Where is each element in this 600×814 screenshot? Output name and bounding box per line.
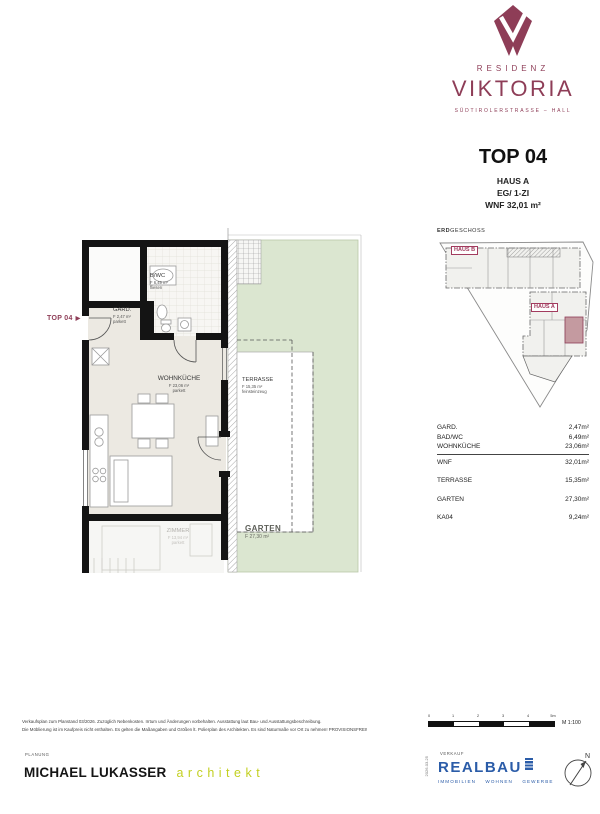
unit-type: EG/ 1-ZI [430, 188, 596, 198]
area-table: GARD.2,47m² BAD/WC6,49m² WOHNKÜCHE23,06m… [437, 423, 589, 523]
siteplan-title: ERDGESCHOSS [437, 228, 485, 234]
table-row: GARD.2,47m² [437, 423, 589, 433]
realbau-badge-icon [525, 758, 533, 771]
brand-viktoria: VIKTORIA [430, 76, 596, 102]
verkauf-label: VERKAUF [440, 751, 464, 756]
room-label-wohnkueche: WOHNKÜCHE F 23,06 m² parkett [147, 375, 211, 394]
table-row: WOHNKÜCHE23,06m² [437, 442, 589, 452]
table-row: KA049,24m² [437, 513, 589, 523]
architect-title: architekt [176, 766, 264, 780]
table-row: TERRASSE15,35m² [437, 476, 589, 486]
entrance-arrow-icon: ▶ [76, 316, 81, 322]
table-row: GARTEN27,30m² [437, 495, 589, 505]
room-label-bwc: B/WC F 6,49 m² fliesen [150, 273, 168, 291]
scale-text: M 1:100 [562, 720, 581, 726]
svg-text:N: N [585, 753, 590, 760]
realbau-logo: REALBAU [438, 758, 533, 776]
planung-label: PLANUNG [25, 752, 49, 757]
siteplan-title-bold: ERD [437, 228, 450, 234]
brand-tagline: SÜDTIROLERSTRASSE – HALL [430, 108, 596, 114]
scale-bar-segments [428, 721, 555, 727]
residenz-viktoria-logo-icon [490, 4, 536, 60]
floorplan-drawing [78, 228, 364, 573]
disclaimer: Verkaufsplan zum Planstand 03/2026. Zuzü… [22, 718, 417, 733]
unit-title: TOP 04 [430, 146, 596, 169]
plan-date: 2026-03-25 [424, 756, 429, 776]
brand-residenz: RESIDENZ [430, 64, 596, 73]
siteplan-drawing [432, 236, 596, 420]
scale-bar: 0 1 2 3 4 5m M 1:100 [428, 714, 598, 732]
room-label-gard: GARD. F 2,47 m² parkett [113, 307, 131, 325]
table-row: BAD/WC6,49m² [437, 433, 589, 443]
compass-north-icon: N [558, 748, 598, 792]
table-row-wnf: WNF32,01m² [437, 458, 589, 468]
siteplan-haus-b-label: HAUS B [451, 246, 478, 255]
unit-wnf: WNF 32,01 m² [430, 200, 596, 210]
table-separator [437, 454, 589, 455]
architect-name: MICHAEL LUKASSER [24, 765, 166, 780]
room-label-garten: GARTEN F 27,30 m² [245, 524, 281, 540]
room-label-zimmer: ZIMMER F 13,94 m² parkett [148, 528, 208, 546]
realbau-subtitle: IMMOBILIEN WOHNEN GEWERBE [438, 779, 554, 784]
siteplan-haus-a-label: HAUS A [531, 303, 558, 312]
room-label-terrasse: TERRASSE F 15,35 m² feinsteinzeug [242, 377, 273, 395]
entrance-label: TOP 04▶ [47, 315, 81, 322]
plan-sheet: RESIDENZ VIKTORIA SÜDTIROLERSTRASSE – HA… [0, 0, 600, 814]
siteplan-title-rest: GESCHOSS [450, 228, 485, 234]
architect-signature: MICHAEL LUKASSERarchitekt [24, 764, 264, 782]
unit-haus: HAUS A [430, 176, 596, 186]
